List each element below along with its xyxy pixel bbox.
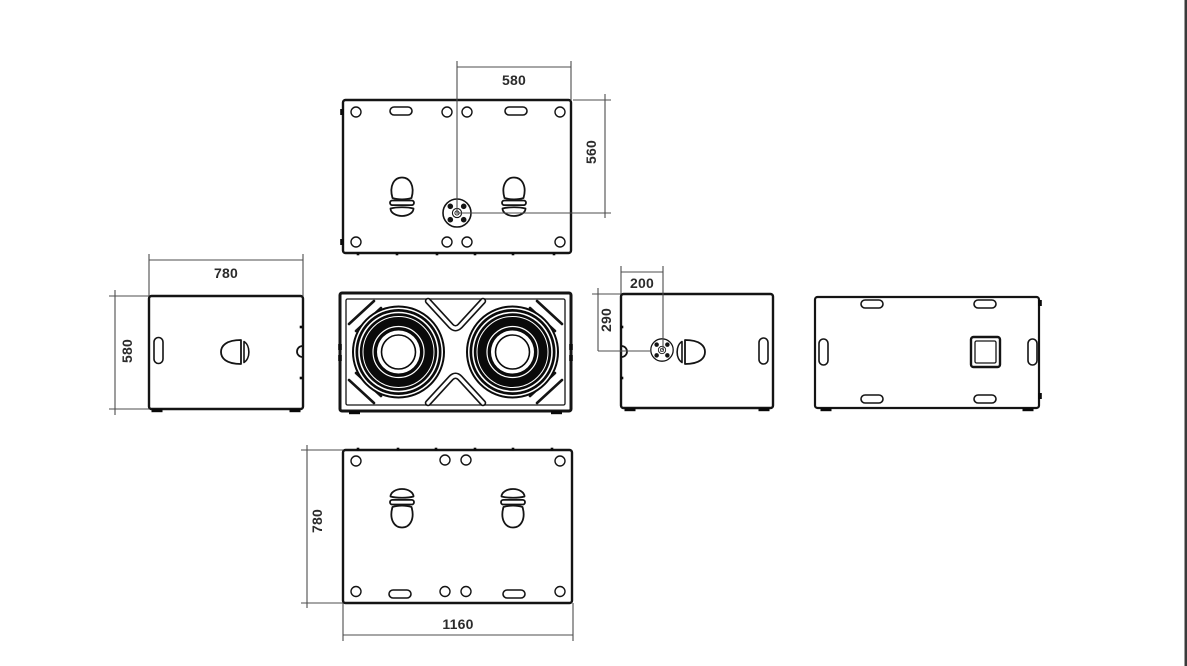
dim-label-pole-y: 290 (598, 308, 614, 332)
rear-view (815, 297, 1042, 411)
top-view-dimensions: 580 560 (457, 61, 611, 218)
handle-plan (390, 489, 414, 528)
center-hole (440, 455, 450, 465)
handle-side (221, 340, 249, 364)
side-slot (819, 339, 828, 365)
side-slot (154, 338, 163, 364)
handle-plan (501, 489, 525, 528)
edge-dot (300, 326, 303, 329)
top-view (340, 100, 571, 255)
foot (349, 411, 360, 414)
handle-plan (390, 178, 414, 217)
edge-nub (338, 344, 342, 350)
handle-plan (502, 178, 526, 217)
edge-dot (300, 377, 303, 380)
handle-side (677, 340, 705, 364)
center-hole (461, 587, 471, 597)
dim-label-side-horizontal: 780 (214, 265, 238, 281)
foot (625, 408, 636, 411)
left-side-view-dimensions: 780 580 (109, 254, 303, 415)
corner-hole (555, 237, 565, 247)
center-hole (461, 455, 471, 465)
front-view (338, 293, 573, 414)
corner-hole (351, 456, 361, 466)
right-side-view-dimensions: 200 290 (592, 266, 663, 351)
corner-hole (351, 107, 361, 117)
side-slot (1028, 339, 1037, 365)
edge-nub (340, 239, 344, 245)
corner-hole (555, 107, 565, 117)
center-hole (462, 107, 472, 117)
edge-nub (569, 355, 573, 361)
foot (759, 408, 770, 411)
foot (290, 409, 301, 412)
rigging-slot (974, 300, 996, 308)
pole-mount-flange-side (651, 339, 673, 361)
edge-dot (621, 377, 624, 380)
rigging-slot (861, 300, 883, 308)
corner-hole (351, 587, 361, 597)
foot (1023, 408, 1034, 411)
dim-label-top-vertical: 560 (583, 140, 599, 164)
corner-hole (555, 587, 565, 597)
drawing-page: 580 560 780 580 (0, 0, 1187, 666)
dim-label-bottom-horizontal: 1160 (442, 616, 473, 632)
rigging-slot (505, 107, 527, 115)
foot (551, 411, 562, 414)
dim-label-top-horizontal: 580 (502, 72, 526, 88)
corner-hole (555, 456, 565, 466)
center-hole (442, 237, 452, 247)
dim-label-pole-x: 200 (630, 275, 654, 291)
edge-nub (338, 355, 342, 361)
center-hole (442, 107, 452, 117)
edge-nub (1038, 300, 1042, 306)
corner-hole (351, 237, 361, 247)
rigging-slot (389, 590, 411, 598)
edge-nub (340, 109, 344, 115)
rigging-slot (390, 107, 412, 115)
woofer-left (353, 307, 444, 398)
dim-label-bottom-vertical: 780 (309, 509, 325, 533)
connector-panel (971, 337, 1000, 367)
edge-nub (569, 344, 573, 350)
foot (821, 408, 832, 411)
technical-drawing: 580 560 780 580 (0, 0, 1187, 666)
right-side-view (621, 294, 773, 411)
edge-notch (297, 346, 303, 357)
bottom-view (343, 448, 572, 603)
edge-nub (1038, 393, 1042, 399)
side-slot (759, 338, 768, 364)
dim-label-side-vertical: 580 (119, 339, 135, 363)
center-hole (440, 587, 450, 597)
rigging-slot (861, 395, 883, 403)
center-hole (462, 237, 472, 247)
foot (152, 409, 163, 412)
left-side-view (149, 296, 303, 412)
edge-dot (621, 326, 624, 329)
woofer-right (467, 307, 558, 398)
rigging-slot (503, 590, 525, 598)
rigging-slot (974, 395, 996, 403)
